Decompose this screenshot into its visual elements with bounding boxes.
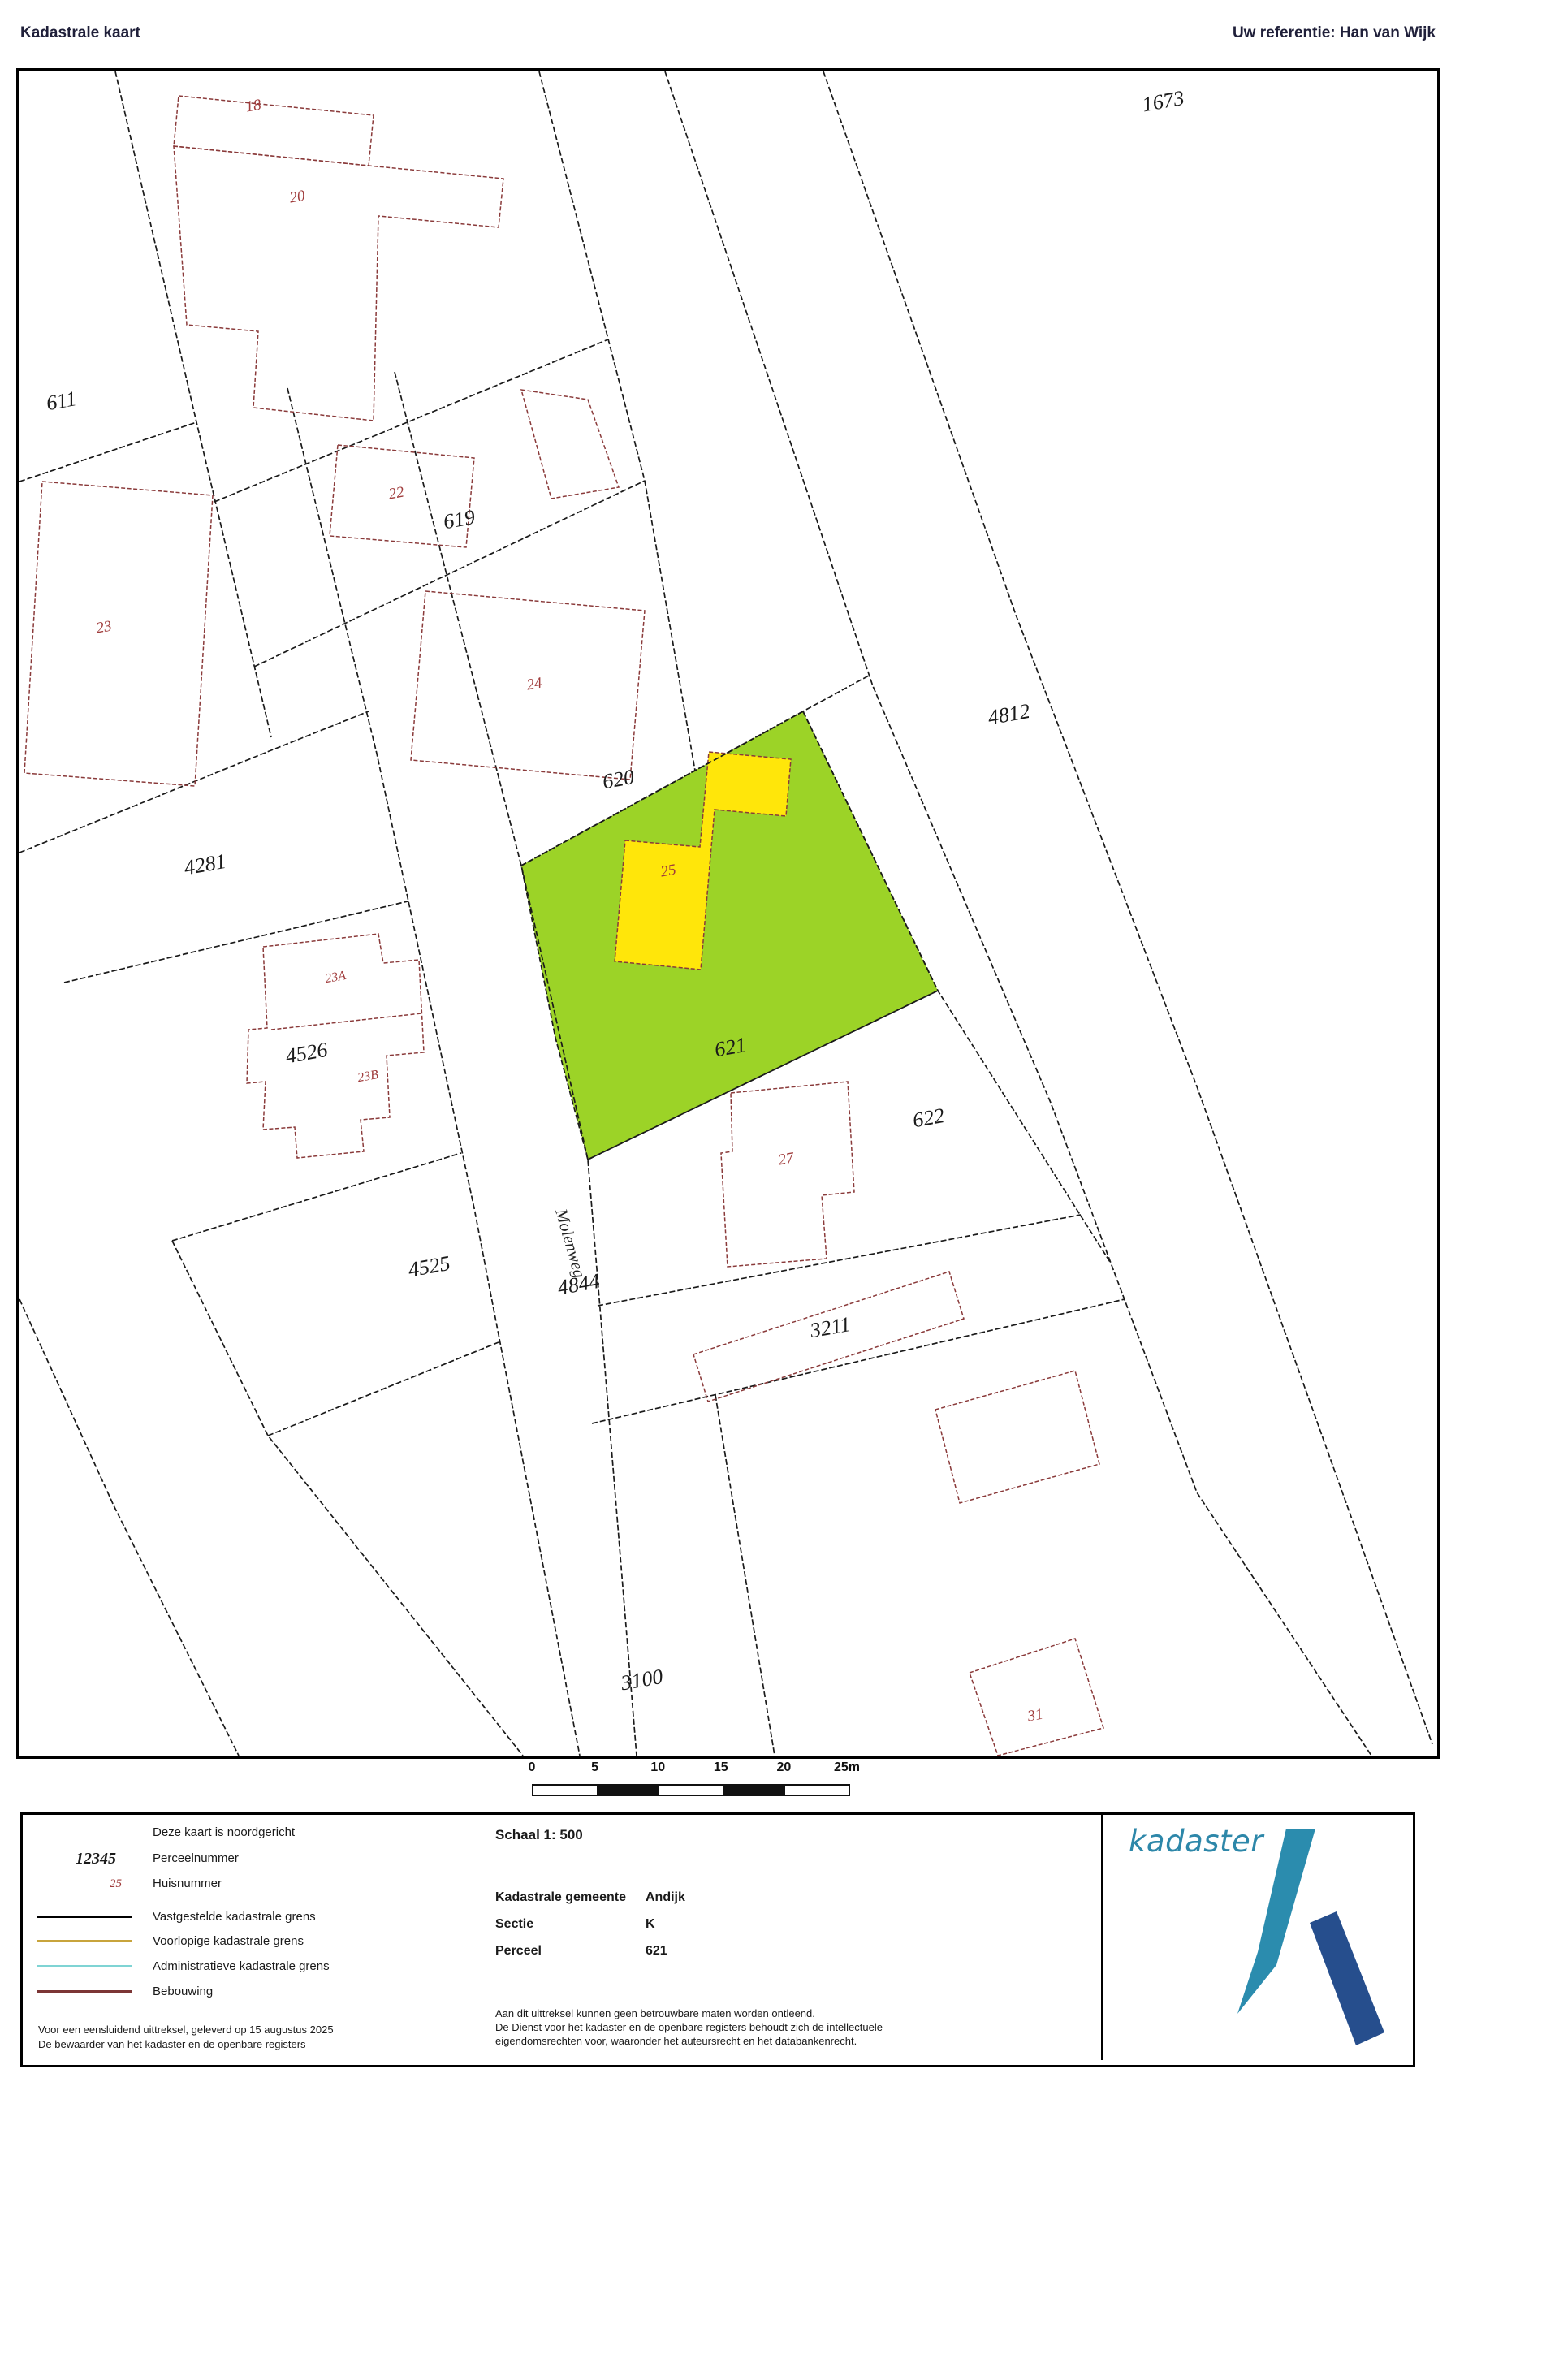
house-label-25: 25 [659,862,677,881]
legend-north-note: Deze kaart is noordgericht [153,1825,295,1839]
parcel-label-4525: 4525 [406,1251,451,1282]
info-label-2: Perceel [495,1944,542,1959]
house-label-23A: 23A [324,969,348,986]
legend-swatch-3 [37,1990,132,1993]
boundary-strip-8 [172,1241,523,1756]
boundary-strip-9 [715,1395,775,1756]
page-title: Kadastrale kaart [20,24,140,42]
legend-house-label: Huisnummer [153,1877,222,1890]
building-divider-0 [271,1013,421,1030]
legend-parcel-sample: 12345 [76,1850,116,1868]
parcel-label-1673: 1673 [1140,86,1185,117]
building-31 [970,1639,1103,1756]
boundary-cross-9 [592,1299,1125,1423]
building-24-annex [521,390,619,499]
disclaimer-1: Aan dit uittreksel kunnen geen betrouwba… [495,2007,815,2019]
legend-swatch-1 [37,1940,132,1942]
parcel-label-3211: 3211 [807,1312,852,1342]
legend-logo-divider [1101,1815,1103,2060]
parcel-label-620: 620 [601,765,636,793]
parcel-label-4281: 4281 [182,849,227,880]
disclaimer-3: eigendomsrechten voor, waaronder het aut… [495,2035,857,2047]
cadastral-map: 6116196206216221673481242814526452548443… [16,68,1440,1759]
scalebar-label-20: 20 [776,1760,791,1775]
street-label-molenweg: Molenweg [551,1206,589,1281]
house-label-31: 31 [1026,1706,1044,1726]
parcel-label-611: 611 [45,387,79,415]
boundary-strip-2 [287,388,580,1756]
boundary-cross-10 [268,1342,499,1436]
info-label-0: Kadastrale gemeente [495,1890,626,1905]
parcel-label-619: 619 [442,505,477,533]
boundary-strip-5 [823,71,1432,1744]
scalebar-segment-3 [723,1786,786,1795]
legend-item-label-2: Administratieve kadastrale grens [153,1959,330,1973]
info-value-2: 621 [646,1944,667,1959]
house-label-27: 27 [777,1149,797,1168]
parcel-label-4812: 4812 [986,699,1031,730]
boundary-cross-4 [172,1153,461,1241]
legend-footer-1: Voor een eensluidend uittreksel, gelever… [38,2024,334,2036]
boundary-cross-1 [214,339,608,502]
scale-text: Schaal 1: 500 [495,1827,583,1843]
legend-item-label-3: Bebouwing [153,1985,213,1998]
boundary-strip-1 [539,71,695,771]
reference-label: Uw referentie: Han van Wijk [1233,24,1436,42]
scalebar-segment-4 [785,1786,849,1795]
boundary-cross-0 [19,422,196,482]
house-label-18: 18 [244,97,263,116]
scalebar-segment-0 [533,1786,597,1795]
scalebar-label-15: 15 [714,1760,728,1775]
scalebar-label-25m: 25m [834,1760,860,1775]
info-value-1: K [646,1917,655,1932]
house-label-23B: 23B [356,1068,380,1085]
parcel-label-4526: 4526 [283,1038,329,1069]
parcel-label-3100: 3100 [618,1665,664,1695]
legend-swatch-0 [37,1916,132,1918]
scalebar-label-0: 0 [529,1760,536,1775]
boundary-cross-8 [598,1215,1081,1306]
legend-item-label-0: Vastgestelde kadastrale grens [153,1910,316,1924]
disclaimer-2: De Dienst voor het kadaster en de openba… [495,2021,883,2033]
legend-parcel-label: Perceelnummer [153,1851,239,1865]
building-unlabeled [935,1371,1099,1503]
scalebar-segment-1 [597,1786,660,1795]
building-23ab [247,934,424,1158]
logo-blade [1237,1829,1315,2014]
kadaster-logo-icon [1218,1819,1429,2063]
building-23 [24,482,213,786]
scalebar [532,1784,850,1796]
legend-swatch-2 [37,1965,132,1967]
parcel-label-622: 622 [911,1104,946,1132]
house-label-23: 23 [95,618,113,637]
legend-house-sample: 25 [110,1877,122,1891]
boundary-cross-3 [64,901,408,983]
legend-item-label-1: Voorlopige kadastrale grens [153,1934,304,1948]
house-label-22: 22 [387,484,406,503]
scalebar-segment-2 [659,1786,723,1795]
map-svg: 6116196206216221673481242814526452548443… [19,71,1437,1756]
scalebar-label-5: 5 [591,1760,598,1775]
legend-footer-2: De bewaarder van het kadaster en de open… [38,2038,306,2050]
scalebar-label-10: 10 [650,1760,665,1775]
house-label-20: 20 [288,188,307,207]
boundary-cross-2 [19,711,369,853]
building-27 [721,1082,854,1267]
info-label-1: Sectie [495,1917,533,1932]
info-value-0: Andijk [646,1890,685,1905]
building-18 [174,96,374,166]
boundary-strip-0 [115,71,271,737]
house-label-24: 24 [525,675,544,694]
boundary-strip-7 [19,1299,239,1756]
building-20 [174,146,503,421]
logo-bar [1310,1911,1384,2045]
